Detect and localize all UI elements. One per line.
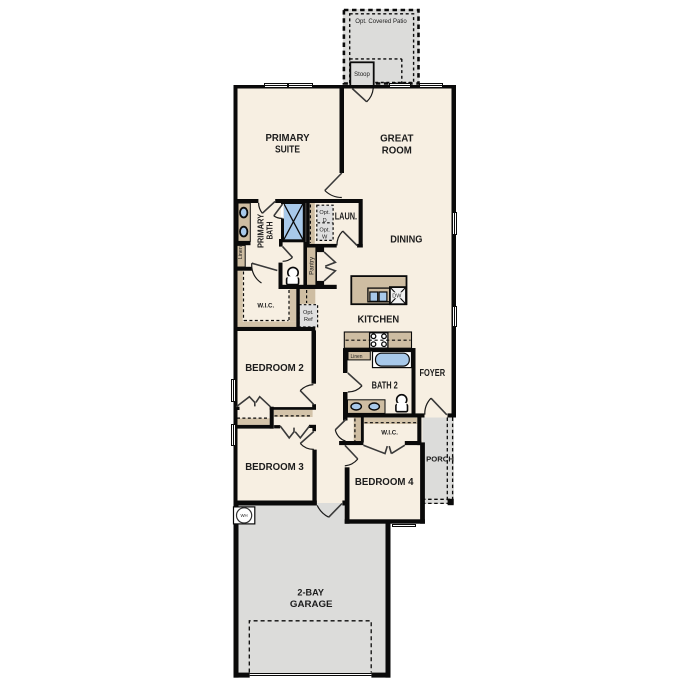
svg-text:KITCHEN: KITCHEN [357,314,399,325]
svg-text:BEDROOM 3: BEDROOM 3 [245,462,304,473]
svg-text:Stoop: Stoop [354,71,370,78]
svg-text:BATH: BATH [266,221,275,239]
svg-text:Opt.: Opt. [319,228,330,234]
svg-text:W: W [322,234,328,240]
svg-text:BATH 2: BATH 2 [372,380,398,391]
svg-text:BEDROOM 4: BEDROOM 4 [355,477,414,488]
svg-text:D: D [323,218,327,224]
svg-text:W.I.C.: W.I.C. [257,302,274,309]
svg-text:LAUN.: LAUN. [335,211,358,222]
svg-text:DINING: DINING [390,234,422,245]
svg-text:WH: WH [241,513,248,518]
svg-text:Linen: Linen [238,246,244,259]
svg-text:PORCH: PORCH [426,455,454,464]
svg-text:W.I.C.: W.I.C. [381,429,398,436]
svg-text:Opt. Covered Patio: Opt. Covered Patio [355,18,407,25]
svg-text:SUITE: SUITE [275,145,300,156]
svg-text:BEDROOM 2: BEDROOM 2 [245,363,304,374]
svg-text:Pantry: Pantry [310,257,316,275]
svg-text:GARAGE: GARAGE [290,598,333,609]
svg-text:Linen: Linen [351,354,363,360]
svg-text:Ref: Ref [304,317,313,323]
svg-text:DW: DW [392,294,402,300]
svg-text:Opt.: Opt. [319,210,330,216]
svg-text:PRIMARY: PRIMARY [266,133,310,144]
svg-text:ROOM: ROOM [382,145,412,156]
svg-text:Opt.: Opt. [303,310,314,316]
svg-text:GREAT: GREAT [380,134,414,145]
svg-text:FOYER: FOYER [419,368,445,379]
svg-text:2-BAY: 2-BAY [297,587,324,597]
svg-text:PRIMARY: PRIMARY [256,213,265,248]
